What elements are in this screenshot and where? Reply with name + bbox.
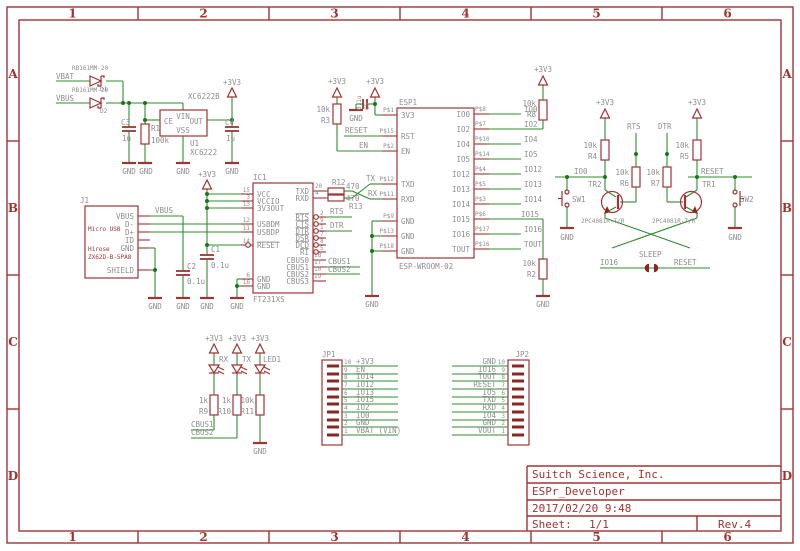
jp2-pin10-num: 10 xyxy=(498,359,506,366)
r11-name: R11 xyxy=(240,407,254,416)
r2-name: R2 xyxy=(527,270,536,279)
c1-value: 0.1u xyxy=(211,261,229,270)
jp1-pin6-num: 6 xyxy=(344,390,348,397)
pwr-3v3-ic1: +3V3 xyxy=(198,170,216,179)
gnd-r2: GND xyxy=(536,300,550,309)
esp1-pnum-5: P$5 xyxy=(475,181,486,188)
jp2-pin7-num: 7 xyxy=(501,382,505,389)
esp1-pnum-4: P$4 xyxy=(475,166,486,173)
ic1-num-2: 2 xyxy=(320,210,324,217)
diode-symbol xyxy=(90,98,101,108)
pwr-3v3-tx: +3V3 xyxy=(228,334,246,343)
jp2-pin1-net: VOUT xyxy=(478,426,497,435)
frame-col-6-bottom: 6 xyxy=(723,530,731,544)
supply-3v3-arrow xyxy=(333,88,342,97)
j1-pin-gnd: GND xyxy=(120,244,134,253)
r9-value: 1k xyxy=(199,396,209,405)
net-io16-jmp: IO16 xyxy=(600,258,619,267)
pwr-3v3-r3: +3V3 xyxy=(328,77,346,86)
u1-pin-vin: VIN xyxy=(176,112,190,121)
u1-name: U1 xyxy=(190,139,199,148)
r2-value: 10k xyxy=(522,259,536,268)
esp1-pnum-15: P$15 xyxy=(380,128,395,135)
d2-name: D2 xyxy=(100,108,108,115)
net-reset-jmp: RESET xyxy=(674,258,697,267)
r5-name: R5 xyxy=(680,152,689,161)
gnd-c1: GND xyxy=(200,302,214,311)
net-io5: IO5 xyxy=(524,150,538,159)
resistor xyxy=(601,140,609,160)
title-block: Suitch Science, Inc. ESPr_Developer 2017… xyxy=(527,466,781,531)
resistor xyxy=(539,100,547,120)
resistor-r12 xyxy=(328,188,344,194)
esp1-pin-io5: IO5 xyxy=(456,155,470,164)
esp1-pin-io12: IO12 xyxy=(452,170,470,179)
r7-value: 10k xyxy=(646,168,660,177)
c3-name: C3 xyxy=(121,118,130,127)
tr2-name: TR2 xyxy=(588,180,602,189)
esp1-pin-gnd3: GND xyxy=(401,247,415,256)
c1-name: C1 xyxy=(211,245,220,254)
pwr-3v3-r4: +3V3 xyxy=(596,98,614,107)
frame-col-5-top: 5 xyxy=(592,7,600,21)
j1-label-type: Micro USB xyxy=(88,226,121,233)
frame-row-D-left: D xyxy=(8,469,18,483)
jp2-pin2-num: 2 xyxy=(501,420,505,427)
jp2-pin1-num: 1 xyxy=(501,428,505,435)
u1-pin-vss: VSS xyxy=(176,126,190,135)
ic1-num-1: 1 xyxy=(320,224,324,231)
ic1-num-8: 8 xyxy=(320,238,324,245)
esp1-pin-rst: RST xyxy=(401,132,415,141)
ic1-num-16: 16 xyxy=(243,279,251,286)
supply-3v3-arrow xyxy=(693,109,702,118)
sheet-frame: 112233445566AABBCCDD xyxy=(7,7,793,545)
u1-type: XC6222 xyxy=(190,148,217,157)
esp1-pnum-6: P$6 xyxy=(475,211,486,218)
title-sheet-value: 1/1 xyxy=(589,518,609,531)
supply-3v3-arrow xyxy=(601,109,610,118)
frame-col-4-top: 4 xyxy=(461,7,469,21)
diode-cathode xyxy=(98,98,104,108)
u1-value: XC6222B xyxy=(188,92,220,101)
net-io15: IO15 xyxy=(521,210,539,219)
resistor xyxy=(256,395,264,415)
title-revision: Rev.4 xyxy=(718,518,751,531)
ic1-pin-cbus3: CBUS3 xyxy=(286,277,309,286)
esp1-pnum-3: P$3 xyxy=(475,196,486,203)
ic1-num-14: 14 xyxy=(243,238,251,245)
frame-row-C-left: C xyxy=(8,335,18,349)
j1-name: J1 xyxy=(80,196,89,205)
r1-name: R1 xyxy=(151,124,160,133)
supply-3v3-arrow xyxy=(228,88,237,97)
r13-name: R13 xyxy=(349,202,363,211)
led-tx-name: TX xyxy=(242,355,252,364)
gnd-c5: GND xyxy=(349,114,363,123)
esp1-pnum-12: P$12 xyxy=(380,176,395,183)
esp1-pin-txd: TXD xyxy=(401,180,415,189)
ic1-num-9: 9 xyxy=(320,217,324,224)
r10-value: 1k xyxy=(222,396,232,405)
net-vbat: VBAT xyxy=(56,72,75,81)
esp1-pin-3v3: 3V3 xyxy=(401,111,415,120)
gnd-sw1: GND xyxy=(560,233,574,242)
ic1-num-20: 20 xyxy=(315,183,323,190)
net-reset-ctl: RESET xyxy=(701,167,724,176)
frame-inner xyxy=(19,20,781,531)
schematic-page: 112233445566AABBCCDD VBATVBUSRB161MM-20R… xyxy=(0,0,800,551)
led-symbol xyxy=(209,365,219,373)
esp1-pnum-10: P$10 xyxy=(475,136,490,143)
u1-pin-out: OUT xyxy=(189,117,203,126)
net-io2: IO2 xyxy=(524,120,538,129)
resistor xyxy=(333,104,341,124)
ic1-pin-gnd2: GND xyxy=(257,282,271,291)
ic1-pin-reset: RESET xyxy=(257,241,280,250)
esp1-pin-io14: IO14 xyxy=(452,200,471,209)
frame-row-D-right: D xyxy=(782,469,792,483)
esp1-pin-gnd2: GND xyxy=(401,232,415,241)
net-rts: RTS xyxy=(330,207,344,216)
ic1-num-19: 19 xyxy=(314,273,322,280)
gnd-r1: GND xyxy=(139,167,153,176)
ic1-num-11: 11 xyxy=(243,225,251,232)
net-io16: IO16 xyxy=(524,225,543,234)
jp1-pin7-num: 7 xyxy=(344,382,348,389)
net-cbus2: CBUS2 xyxy=(328,265,351,274)
ic1-value: FT231XS xyxy=(253,295,285,304)
resistor-r13 xyxy=(328,195,344,201)
sw2-name: SW2 xyxy=(740,195,754,204)
esp1-pnum-7: P$7 xyxy=(475,121,486,128)
c5-value: 0.1u xyxy=(356,95,363,110)
c3-value: 1u xyxy=(122,134,131,143)
pwr-3v3-led1: +3V3 xyxy=(251,334,269,343)
ic1-name: IC1 xyxy=(253,173,267,182)
net-vbus-2: VBUS xyxy=(155,206,174,215)
pwr-3v3-r5: +3V3 xyxy=(688,98,706,107)
net-tx: TX xyxy=(366,174,376,183)
ic1-num-15: 15 xyxy=(243,187,251,194)
r8-value: 10k xyxy=(522,99,536,108)
jp2-name: JP2 xyxy=(515,350,529,359)
led-symbol xyxy=(232,365,242,373)
gnd-c3: GND xyxy=(122,167,136,176)
tr2-value: 2PC4081R-T/R xyxy=(581,218,625,225)
ic1-num-10: 10 xyxy=(314,266,322,273)
d1-name: D1 xyxy=(100,86,108,93)
c4-value: 1u xyxy=(226,134,235,143)
supply-3v3-arrow xyxy=(233,344,242,353)
esp1-pnum-2: P$2 xyxy=(383,143,394,150)
title-sheet-label: Sheet: xyxy=(532,518,572,531)
led-symbol xyxy=(255,365,265,373)
jp1-pin10-num: 10 xyxy=(344,359,352,366)
esp1-pin-io0: IO0 xyxy=(456,110,470,119)
supply-3v3-arrow xyxy=(371,88,380,97)
frame-col-2-top: 2 xyxy=(199,7,207,21)
esp1-pin-io4: IO4 xyxy=(456,140,470,149)
esp1-pin-tout: TOUT xyxy=(452,245,471,254)
r6-name: R6 xyxy=(620,179,630,188)
supply-3v3-arrow xyxy=(256,344,265,353)
ic1-num-3: 3 xyxy=(246,194,250,201)
frame-col-4-bottom: 4 xyxy=(461,530,469,544)
jp1-pin4-num: 4 xyxy=(344,405,348,412)
r5-value: 10k xyxy=(675,141,689,150)
frame-col-1-top: 1 xyxy=(68,7,76,21)
ic1-pin-usbdp: USBDP xyxy=(257,228,280,237)
ic1-num-12: 12 xyxy=(243,217,251,224)
ic1-num-4: 4 xyxy=(315,190,319,197)
c2-value: 0.1u xyxy=(187,277,205,286)
sleep-jumper-pad xyxy=(654,264,658,273)
r9-name: R9 xyxy=(199,407,208,416)
c2-name: C2 xyxy=(187,262,196,271)
frame-row-B-left: B xyxy=(8,201,18,215)
j1-pin-shield: SHIELD xyxy=(107,266,135,275)
r6-value: 10k xyxy=(615,168,629,177)
ic1-num-5: 5 xyxy=(320,245,324,252)
net-en: EN xyxy=(359,141,368,150)
r8-name: R8 xyxy=(527,110,537,119)
r3-value: 10k xyxy=(316,105,330,114)
r4-name: R4 xyxy=(588,152,598,161)
esp1-pin-io2: IO2 xyxy=(456,125,470,134)
c5-name: C5 xyxy=(364,102,371,110)
esp1-pnum-16: P$16 xyxy=(475,241,490,248)
pwr-3v3-rx: +3V3 xyxy=(205,334,223,343)
gnd-ic1: GND xyxy=(230,302,244,311)
esp1-pin-io13: IO13 xyxy=(452,185,470,194)
esp1-pin-en: EN xyxy=(401,147,410,156)
ic1-num-17: 17 xyxy=(314,259,322,266)
frame-col-3-top: 3 xyxy=(330,7,338,21)
ic1-pin-rxd: RXD xyxy=(295,194,309,203)
r11-value: 10k xyxy=(240,396,254,405)
supply-3v3-arrow xyxy=(203,180,212,189)
resistor xyxy=(141,124,149,144)
jp1-pin8-num: 8 xyxy=(344,374,348,381)
jp2-pin8-num: 8 xyxy=(501,374,505,381)
esp1-pnum-13: P$13 xyxy=(380,228,395,235)
esp1-pnum-1: P$1 xyxy=(383,107,394,114)
gnd-c4: GND xyxy=(225,167,239,176)
frame-col-1-bottom: 1 xyxy=(68,530,76,544)
net-tout: TOUT xyxy=(524,240,543,249)
frame-row-A-left: A xyxy=(7,67,18,81)
jp2-pin3-num: 3 xyxy=(501,413,505,420)
diode-symbol xyxy=(90,76,101,86)
net-vbus: VBUS xyxy=(56,94,75,103)
net-reset-esp: RESET xyxy=(345,126,368,135)
r3-name: R3 xyxy=(321,116,330,125)
jp2-pin5-num: 5 xyxy=(501,397,505,404)
gnd-j1: GND xyxy=(148,302,162,311)
pwr-3v3-reg: +3V3 xyxy=(223,78,241,87)
resistor xyxy=(663,167,671,187)
r7-name: R7 xyxy=(651,179,660,188)
frame-row-A-right: A xyxy=(781,67,792,81)
frame-row-C-right: C xyxy=(782,335,792,349)
jp1-pin5-num: 5 xyxy=(344,397,348,404)
diode-cathode xyxy=(98,76,104,86)
u1-pin-ce: CE xyxy=(164,117,174,126)
supply-3v3-arrow xyxy=(539,76,548,85)
frame-col-2-bottom: 2 xyxy=(199,530,207,544)
resistor xyxy=(539,259,547,279)
esp1-pin-gnd1: GND xyxy=(401,217,415,226)
jp2-pin9-num: 9 xyxy=(501,367,505,374)
esp1-pin-io15: IO15 xyxy=(452,215,470,224)
gnd-led1: GND xyxy=(253,447,267,456)
esp1-value: ESP-WROOM-02 xyxy=(399,262,453,271)
net-dtr: DTR xyxy=(330,221,344,230)
jp2-pin6-num: 6 xyxy=(501,390,505,397)
r4-value: 10k xyxy=(583,141,597,150)
ic1-num-18: 18 xyxy=(314,252,322,259)
net-cbus2-led: CBUS2 xyxy=(191,428,214,437)
schematic-canvas: 112233445566AABBCCDD VBATVBUSRB161MM-20R… xyxy=(0,0,800,551)
title-company: Suitch Science, Inc. xyxy=(532,468,664,481)
resistor xyxy=(693,140,701,160)
frame-col-5-bottom: 5 xyxy=(592,530,600,544)
net-dtr-ctl: DTR xyxy=(658,122,672,131)
jp1-pin1-num: 1 xyxy=(344,428,348,435)
r12-name: R12 xyxy=(332,178,346,187)
sleep-jumper-pad xyxy=(645,264,649,273)
jp1-pin2-num: 2 xyxy=(344,420,348,427)
gnd-esp: GND xyxy=(365,300,379,309)
jp1-pin1-net: VBAT (VIN) xyxy=(356,426,401,435)
esp1-pnum-8: P$8 xyxy=(475,106,486,113)
r12-value: 470 xyxy=(346,182,360,191)
ic1-pin-3v3out: 3V3OUT xyxy=(257,204,285,213)
resistor xyxy=(632,167,640,187)
gnd-c2: GND xyxy=(176,302,190,311)
pwr-3v3-r8: +3V3 xyxy=(534,65,552,74)
esp1-pin-io16: IO16 xyxy=(452,230,471,239)
title-date: 2017/02/20 9:48 xyxy=(532,502,631,515)
r10-name: R10 xyxy=(217,407,231,416)
supply-3v3-arrow xyxy=(210,344,219,353)
ic1-num-6: 6 xyxy=(246,272,250,279)
pwr-3v3-esp: +3V3 xyxy=(366,77,384,86)
frame-row-B-right: B xyxy=(782,201,792,215)
jp2-pin4-num: 4 xyxy=(501,405,505,412)
jp1-name: JP1 xyxy=(322,350,336,359)
led-rx-name: RX xyxy=(219,355,229,364)
esp1-pnum-11: P$11 xyxy=(380,191,395,198)
esp1-pnum-14: P$14 xyxy=(475,151,490,158)
r1-value: 100k xyxy=(151,136,170,145)
ic1-num-7: 7 xyxy=(320,231,324,238)
net-io14: IO14 xyxy=(524,195,543,204)
j1-label-mfr: Hirose xyxy=(88,246,110,253)
jp-sleep-name: SLEEP xyxy=(639,250,662,259)
gnd-sw2: GND xyxy=(728,233,742,242)
schematic-labels: VBATVBUSRB161MM-20RB161MM-20D1D2XC6222BU… xyxy=(56,65,754,456)
esp1-pin-rxd: RXD xyxy=(401,195,415,204)
j1-label-pn: ZX62D-B-5PA8 xyxy=(88,254,132,261)
jp1-pin3-num: 3 xyxy=(344,413,348,420)
gnd-u1: GND xyxy=(176,167,190,176)
frame-col-6-top: 6 xyxy=(723,7,731,21)
ic1-num-13: 13 xyxy=(243,201,251,208)
esp1-pnum-17: P$17 xyxy=(475,226,490,233)
net-io4: IO4 xyxy=(524,135,538,144)
net-io12: IO12 xyxy=(524,165,542,174)
frame-col-3-bottom: 3 xyxy=(330,530,338,544)
esp1-pnum-9: P$9 xyxy=(383,213,394,220)
esp1-name: ESP1 xyxy=(399,98,417,107)
frame-outer xyxy=(7,7,793,543)
jp1-pin9-num: 9 xyxy=(344,367,348,374)
title-project: ESPr_Developer xyxy=(532,485,625,498)
net-io0-ctl: IO0 xyxy=(574,167,588,176)
net-rts-ctl: RTS xyxy=(627,122,641,131)
d1-value: RB161MM-20 xyxy=(72,65,109,72)
led1-name: LED1 xyxy=(263,355,281,364)
c4-name: C4 xyxy=(225,118,235,127)
tr1-value: 2PC4081R-T/R xyxy=(652,218,696,225)
net-rx: RX xyxy=(368,189,378,198)
net-io13: IO13 xyxy=(524,180,542,189)
esp1-pnum-18: P$18 xyxy=(380,243,395,250)
tr1-name: TR1 xyxy=(702,180,716,189)
sw1-name: SW1 xyxy=(572,195,586,204)
